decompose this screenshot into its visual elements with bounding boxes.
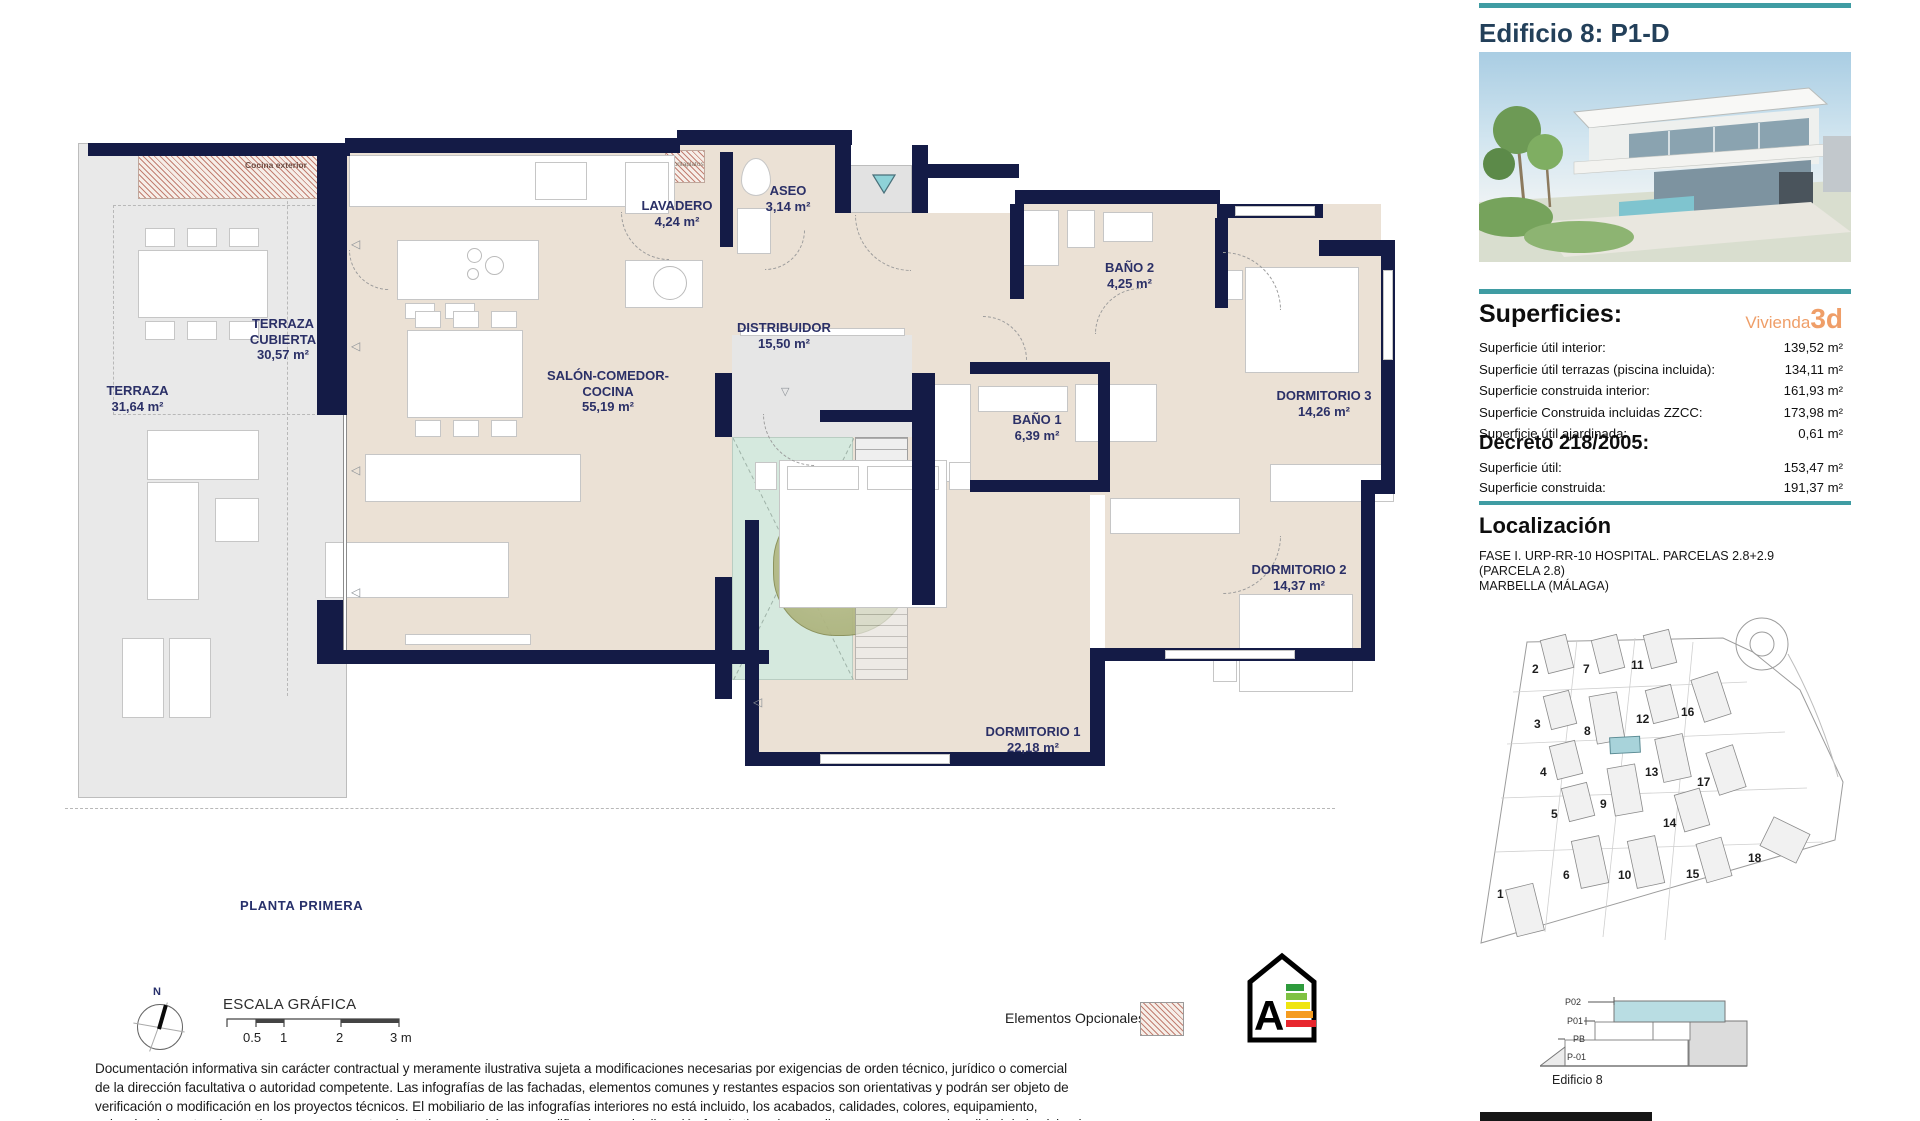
address-line: (PARCELA 2.8)	[1479, 564, 1851, 579]
decreto-row: Superficie construida:191,37 m²	[1479, 478, 1843, 498]
room-name: BAÑO 1	[993, 412, 1081, 428]
terrace-side-table	[215, 498, 259, 542]
cooktop-burner	[485, 256, 504, 275]
page-title: Edificio 8: P1-D	[1479, 18, 1670, 49]
kitchen-sink	[535, 162, 587, 200]
parcel-number: 5	[1551, 807, 1558, 821]
outdoor-kitchen-label: Cocina exterior	[245, 160, 307, 170]
wall-segment	[912, 145, 928, 213]
parcel-number: 10	[1618, 868, 1631, 882]
room-name: DORMITORIO 2	[1235, 562, 1363, 578]
parcel-number: 11	[1631, 658, 1644, 672]
glass-wall	[343, 415, 347, 650]
nightstand	[949, 462, 971, 490]
view-marker-icon: ▽	[781, 386, 789, 398]
disclaimer-line: verificación o modificación en los proye…	[95, 1098, 1357, 1117]
parcel-number: 2	[1532, 662, 1539, 676]
room-label-lavadero: LAVADERO 4,24 m²	[627, 198, 727, 229]
room-label-dorm3: DORMITORIO 3 14,26 m²	[1260, 388, 1388, 419]
room-label-bano1: BAÑO 1 6,39 m²	[993, 412, 1081, 443]
wall-segment	[1098, 362, 1110, 492]
localizacion-rule	[1479, 501, 1851, 505]
highlighted-parcel	[1610, 736, 1641, 754]
terrace-sofa	[147, 482, 199, 600]
row-value: 173,98 m²	[1784, 402, 1843, 424]
property-limit-line	[65, 808, 1335, 809]
wall-segment	[970, 362, 1098, 374]
room-name: BAÑO 2	[1087, 260, 1172, 276]
wall-segment	[970, 480, 1110, 492]
scale-tick: 3 m	[390, 1030, 412, 1045]
room-label-dorm2: DORMITORIO 2 14,37 m²	[1235, 562, 1363, 593]
row-label: Superficie construida:	[1479, 478, 1606, 498]
room-area: 3,14 m²	[753, 199, 823, 215]
plan-sheet-page: { "header": { "title": "Edificio 8: P1-D…	[0, 0, 1920, 1121]
address-line: FASE I. URP-RR-10 HOSPITAL. PARCELAS 2.8…	[1479, 549, 1851, 564]
vivienda-label: Vivienda	[1745, 313, 1810, 332]
level-label: P01	[1567, 1016, 1583, 1026]
wall-segment	[820, 410, 915, 422]
dining-chair	[491, 420, 517, 437]
level-label: P-01	[1567, 1052, 1586, 1062]
tv-bench	[405, 634, 531, 645]
disclaimer: Documentación informativa sin carácter c…	[95, 1060, 1357, 1120]
compass-n-label: N	[153, 986, 161, 998]
terrace-chair	[229, 228, 259, 247]
vanity-bath2	[1103, 212, 1153, 242]
view-marker-icon: ◁	[351, 340, 360, 352]
wall-segment	[715, 577, 732, 699]
window	[1235, 206, 1315, 216]
section-caption: Edificio 8	[1552, 1073, 1603, 1087]
superficies-heading: Superficies:	[1479, 300, 1622, 329]
room-area: 4,25 m²	[1087, 276, 1172, 292]
sun-lounger	[122, 638, 164, 718]
parcel-number: 8	[1584, 724, 1591, 738]
room-name: TERRAZA	[85, 383, 190, 399]
parcel-number: 16	[1681, 705, 1694, 719]
row-label: Superficie útil interior:	[1479, 337, 1606, 359]
room-area: 30,57 m²	[245, 347, 321, 363]
parcel-number: 6	[1563, 868, 1570, 882]
room-label-distribuidor: DISTRIBUIDOR 15,50 m²	[719, 320, 849, 351]
compass: N	[132, 992, 186, 1052]
entrance-arrow-icon	[872, 174, 896, 194]
sun-lounger	[169, 638, 211, 718]
sofa	[365, 454, 581, 502]
parcel-number: 12	[1636, 712, 1649, 726]
energy-rating-badge: A	[1238, 948, 1322, 1050]
decreto-heading: Decreto 218/2005:	[1479, 432, 1649, 455]
parcel-number: 3	[1534, 717, 1541, 731]
scale-tick: 2	[336, 1030, 343, 1045]
room-label-dorm1: DORMITORIO 1 22,18 m²	[968, 724, 1098, 755]
row-label: Superficie construida interior:	[1479, 380, 1650, 402]
window	[1165, 650, 1295, 659]
wall-segment	[345, 138, 680, 153]
optional-elements-label: Elementos Opcionales	[1005, 1010, 1145, 1026]
vivienda-tag: Vivienda3d	[1700, 303, 1843, 335]
building-section: P02 P01 PB P-01 Edificio 8	[1540, 985, 1770, 1095]
dining-table	[407, 330, 523, 418]
nightstand	[755, 462, 777, 490]
room-area: 14,26 m²	[1260, 404, 1388, 420]
scale-tick: 0.5	[243, 1030, 261, 1045]
room-label-bano2: BAÑO 2 4,25 m²	[1087, 260, 1172, 291]
wall-segment	[677, 130, 852, 145]
wall-segment	[317, 143, 347, 415]
superficies-table: Superficie útil interior:139,52 m² Super…	[1479, 337, 1843, 445]
terrace-table	[138, 250, 268, 318]
footer-bar	[1480, 1112, 1652, 1121]
parcel-number: 4	[1540, 765, 1547, 779]
wc-bath2	[1067, 210, 1095, 248]
bed-dorm2	[1239, 594, 1353, 692]
room-area: 14,37 m²	[1235, 578, 1363, 594]
room-name: DISTRIBUIDOR	[719, 320, 849, 336]
wall-segment	[1015, 190, 1220, 204]
disclaimer-line: de la dirección facultativa o autoridad …	[95, 1079, 1357, 1098]
wardrobe	[1110, 498, 1240, 534]
parcel-number: 18	[1748, 851, 1761, 865]
energy-letter: A	[1254, 992, 1284, 1039]
row-label: Superficie útil terrazas (piscina inclui…	[1479, 359, 1715, 381]
window	[1383, 270, 1393, 360]
wall-segment	[317, 650, 769, 664]
view-marker-icon: ◁	[351, 238, 360, 250]
row-value: 191,37 m²	[1784, 478, 1843, 498]
room-name: SALÓN-COMEDOR-COCINA	[542, 368, 674, 399]
superficies-row: Superficie útil interior:139,52 m²	[1479, 337, 1843, 359]
view-marker-icon: ◁	[753, 696, 762, 708]
room-area: 31,64 m²	[85, 399, 190, 415]
level-label: P02	[1565, 997, 1581, 1007]
parcel-number: 1	[1497, 887, 1504, 901]
vivienda-value: 3d	[1810, 303, 1843, 334]
wall-segment	[745, 520, 759, 752]
terrace-chair	[145, 228, 175, 247]
bathtub-bath1	[1075, 384, 1157, 442]
row-label: Superficie Construida incluidas ZZCC:	[1479, 402, 1703, 424]
localizacion-address: FASE I. URP-RR-10 HOSPITAL. PARCELAS 2.8…	[1479, 549, 1851, 594]
dining-chair	[415, 311, 441, 328]
terrace-chair	[145, 321, 175, 340]
row-value: 153,47 m²	[1784, 458, 1843, 478]
row-value: 134,11 m²	[1785, 359, 1843, 381]
room-label-terraza-cubierta: TERRAZA CUBIERTA 30,57 m²	[245, 316, 321, 363]
row-value: 139,52 m²	[1784, 337, 1843, 359]
floor-plan: Cocina exterior Montaplatos	[65, 100, 1395, 814]
floor-title: PLANTA PRIMERA	[240, 898, 363, 913]
terrace-sofa	[147, 430, 259, 480]
room-name: DORMITORIO 3	[1260, 388, 1388, 404]
scale-tick: 1	[280, 1030, 287, 1045]
room-name: ASEO	[753, 183, 823, 199]
wall-segment	[912, 373, 935, 605]
scale-bar	[225, 1012, 403, 1030]
wall-segment	[715, 373, 732, 437]
room-area: 6,39 m²	[993, 428, 1081, 444]
top-rule	[1479, 3, 1851, 8]
decreto-row: Superficie útil:153,47 m²	[1479, 458, 1843, 478]
dining-chair	[453, 420, 479, 437]
parcel-number: 9	[1600, 797, 1607, 811]
room-label-salon: SALÓN-COMEDOR-COCINA 55,19 m²	[542, 368, 674, 415]
room-name: LAVADERO	[627, 198, 727, 214]
disclaimer-line: y demás elementos decorativos son merame…	[95, 1116, 1357, 1120]
parcel-number: 7	[1583, 662, 1590, 676]
dining-chair	[415, 420, 441, 437]
dining-chair	[491, 311, 517, 328]
superficies-row: Superficie Construida incluidas ZZCC:173…	[1479, 402, 1843, 424]
view-marker-icon: ◁	[351, 586, 360, 598]
room-area: 22,18 m²	[968, 740, 1098, 756]
parcel-number: 17	[1697, 775, 1710, 789]
row-label: Superficie útil:	[1479, 458, 1562, 478]
parcel-number: 14	[1663, 816, 1676, 830]
vanity-bath1	[978, 386, 1068, 412]
window	[820, 754, 950, 764]
superficies-rule	[1479, 289, 1851, 294]
dining-chair	[453, 311, 479, 328]
localizacion-heading: Localización	[1479, 513, 1611, 539]
disclaimer-line: Documentación informativa sin carácter c…	[95, 1060, 1357, 1079]
room-area: 55,19 m²	[542, 399, 674, 415]
superficies-row: Superficie construida interior:161,93 m²	[1479, 380, 1843, 402]
room-area: 15,50 m²	[719, 336, 849, 352]
washer-drum	[653, 266, 687, 300]
level-label: PB	[1573, 1034, 1585, 1044]
decreto-table: Superficie útil:153,47 m² Superficie con…	[1479, 458, 1843, 497]
scale-title: ESCALA GRÁFICA	[223, 996, 356, 1013]
wall-segment	[1361, 492, 1375, 660]
site-map: 2 7 11 3 8 12 16 4 13 17 5 9 14 6 10 15 …	[1455, 592, 1905, 954]
room-label-aseo: ASEO 3,14 m²	[753, 183, 823, 214]
bed-pillow	[787, 466, 859, 490]
superficies-row: Superficie útil terrazas (piscina inclui…	[1479, 359, 1843, 381]
cooktop-burner	[467, 248, 482, 263]
row-value: 161,93 m²	[1784, 380, 1843, 402]
terrace-chair	[187, 228, 217, 247]
wall-segment	[927, 164, 1019, 178]
optional-elements-swatch	[1140, 1002, 1184, 1036]
cooktop-burner	[467, 268, 479, 280]
parcel-number: 15	[1686, 867, 1699, 881]
wall-segment	[88, 143, 350, 156]
room-name: TERRAZA CUBIERTA	[245, 316, 321, 347]
wall-segment	[1010, 204, 1024, 299]
view-marker-icon: ◁	[351, 464, 360, 476]
terrace-chair	[187, 321, 217, 340]
room-name: DORMITORIO 1	[968, 724, 1098, 740]
parcel-number: 13	[1645, 765, 1658, 779]
room-label-terraza: TERRAZA 31,64 m²	[85, 383, 190, 414]
row-value: 0,61 m²	[1798, 423, 1843, 445]
room-area: 4,24 m²	[627, 214, 727, 230]
villa-render	[1479, 52, 1851, 262]
site-map-drawing	[1455, 592, 1905, 954]
wall-segment	[835, 145, 851, 213]
